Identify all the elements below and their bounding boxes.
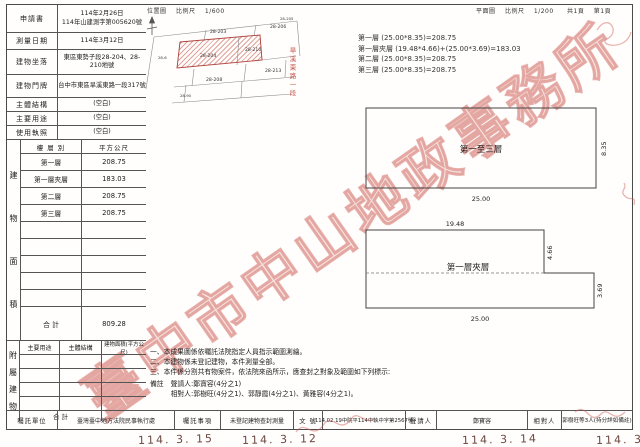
annex-table-vertical-label: 附 屬 建 物 <box>7 341 20 421</box>
doc-number-value: 114.02.19中院平114中執中字第2567號 <box>323 411 406 429</box>
plan-lower-bottomwidth-dim: 25.00 <box>471 315 490 323</box>
parcel-label: 28-213 <box>265 68 281 74</box>
table-row: 主體結構 (空白) <box>7 98 146 112</box>
application-info-table: 申請書 114年2月26日 114年山建測字第005620號 測量日期 114年… <box>7 5 146 140</box>
page-total: 共1頁 <box>567 8 584 15</box>
plan-upper-width-dim: 25.00 <box>472 195 491 203</box>
parcel-label: 28-204 <box>200 53 216 59</box>
table-row: 使用執照 (空白) <box>7 126 146 140</box>
field-value: (空白) <box>58 112 146 125</box>
note-line: 一、本成果圖係依囑託法院指定人員指示範圍測繪。 <box>150 347 490 357</box>
field-value: 東區東勢子段28-204、28-210地號 <box>58 50 146 74</box>
field-label: 申請書 <box>7 5 58 32</box>
field-label: 測量日期 <box>7 33 58 49</box>
note-line: 三、本件係分割共有物案件，依法院來函所示，應查封之對象及範圍如下列標示: <box>150 367 490 377</box>
plan-upper-label: 第一至三層 <box>460 144 503 155</box>
applicant-value: 鄭寶容 <box>437 411 528 429</box>
table-row: 測量日期 114年3月12日 <box>7 33 146 50</box>
parcel-label: 28-205 <box>280 16 294 21</box>
applicant-label: 聲請人 <box>406 411 437 429</box>
commission-matter-value: 未登記建物查封測量 <box>221 411 294 429</box>
floor-row: 第二層 208.75 <box>21 188 146 205</box>
plan-scale-label: 比例尺 <box>505 8 525 15</box>
remark-label: 備註 <box>150 379 164 399</box>
floor-area-table: 建 物 面 積 樓 層 別 平方公尺 第一層 208.75 第一層夾層 183.… <box>7 140 146 341</box>
area-calculation-block: 第一層 (25.00*8.35)=208.75 第一層夾層 (19.48*4.6… <box>358 33 521 75</box>
field-label: 主體結構 <box>7 98 58 111</box>
parcel-label: 28-210 <box>245 47 261 53</box>
date-stamp: 114. 3. 12 <box>596 432 640 447</box>
calc-line: 第三層 (25.00*8.35)=208.75 <box>358 65 521 76</box>
field-label: 建物坐落 <box>7 50 58 74</box>
calc-line: 第一層夾層 (19.48*4.66)+(25.00*3.69)=183.03 <box>358 44 521 55</box>
floor-row-empty <box>21 256 146 273</box>
date-stamp: 114. 3. 12 <box>242 432 318 447</box>
floor-row: 第三層 208.75 <box>21 205 146 222</box>
floor-row-empty <box>21 239 146 256</box>
annex-header-structure: 主體結構 <box>60 341 102 354</box>
respondent-label: 相對人 <box>528 411 562 429</box>
left-data-column: 申請書 114年2月26日 114年山建測字第005620號 測量日期 114年… <box>7 5 146 421</box>
plan-title: 平面圖 <box>476 8 496 15</box>
field-value: 114年2月26日 114年山建測字第005620號 <box>58 5 146 32</box>
location-map-title: 位置圖 <box>147 8 167 15</box>
field-value: (空白) <box>58 98 146 111</box>
note-line: 二、本建物係未登記建物，本件測量全部。 <box>150 357 490 367</box>
floor-plan-drawings: 第一至三層 25.00 8.35 19.48 4.66 第一層夾層 3.69 2… <box>356 90 636 335</box>
floor-table-vertical-label: 建 物 面 積 <box>7 140 21 340</box>
table-row: 申請書 114年2月26日 114年山建測字第005620號 <box>7 5 146 33</box>
annex-row-empty <box>20 355 146 369</box>
remark-row: 備註 聲請人:鄭寶容(4分之1) 相對人:郭樹旺(4分之1)、郭靜霞(4分之1)… <box>150 379 490 399</box>
commission-unit-label: 囑託單位 <box>7 411 58 429</box>
floor-name: 第二層 <box>21 188 82 204</box>
field-label: 建物門牌 <box>7 75 58 97</box>
table-row: 主要用途 (空白) <box>7 112 146 126</box>
parcel-label: 28-6 <box>158 55 167 60</box>
floor-area: 208.75 <box>82 188 146 204</box>
floor-row: 第一層夾層 183.03 <box>21 171 146 188</box>
location-map-scale: 1/600 <box>205 8 225 15</box>
field-label: 使用執照 <box>7 126 58 139</box>
calc-line: 第二層 (25.00*8.35)=208.75 <box>358 54 521 65</box>
annex-header-use: 主要用途 <box>20 341 60 354</box>
field-value: 114年3月12日 <box>58 33 146 49</box>
annex-header-area: 建物面積(平方公尺) <box>102 341 146 354</box>
parcel-label: 28-208 <box>206 77 222 83</box>
floor-row-empty <box>21 290 146 307</box>
floor-row-empty <box>21 222 146 239</box>
parcel-label: 28-206 <box>270 24 286 30</box>
floor-table-header: 樓 層 別 平方公尺 <box>21 140 146 154</box>
commission-unit-value: 臺灣臺中地方法院民事執行處 <box>58 411 175 429</box>
floor-total-label: 合 計 <box>21 307 82 340</box>
plan-caption: 平面圖 比例尺 1/200 <box>476 6 561 15</box>
floor-area: 208.75 <box>82 154 146 170</box>
north-arrow-icon <box>147 17 157 35</box>
floor-area: 183.03 <box>82 171 146 187</box>
floor-total-value: 809.28 <box>82 307 146 340</box>
plan-lower-lowerheight-dim: 3.69 <box>596 284 604 298</box>
survey-result-document: 臺中市中山地政事務所 位置圖 比例尺 1/600 平面圖 比例尺 1/200 共… <box>0 0 640 447</box>
plan-upper-height-dim: 8.35 <box>600 142 608 156</box>
plan-lower-topwidth-dim: 19.48 <box>446 220 465 228</box>
commission-matter-label: 囑託事項 <box>175 411 221 429</box>
plan-lower-label: 第一層夾層 <box>447 262 490 273</box>
parcel-label: 28-203 <box>210 29 226 35</box>
notes-block: 一、本成果圖係依囑託法院指定人員指示範圍測繪。 二、本建物係未登記建物，本件測量… <box>150 347 490 399</box>
page-indicator: 共1頁 第1頁 <box>567 6 618 15</box>
field-label: 主要用途 <box>7 112 58 125</box>
location-map-caption: 位置圖 比例尺 1/600 <box>147 6 232 15</box>
calc-line: 第一層 (25.00*8.35)=208.75 <box>358 33 521 44</box>
parcel-label: 28-90 <box>180 93 192 98</box>
location-map-scale-label: 比例尺 <box>176 8 196 15</box>
floor-total-row: 合 計 809.28 <box>21 307 146 340</box>
floor-area: 208.75 <box>82 205 146 221</box>
street-name-label: 旱溪東路一段 <box>287 47 297 98</box>
annex-row-empty <box>20 397 146 411</box>
remark-respondents: 相對人:郭樹旺(4分之1)、郭靜霞(4分之1)、黃雅容(4分之1)。 <box>171 389 358 399</box>
annex-table-header: 主要用途 主體結構 建物面積(平方公尺) <box>20 341 146 355</box>
remark-applicant: 聲請人:鄭寶容(4分之1) <box>171 379 358 389</box>
page-number: 第1頁 <box>594 8 611 15</box>
annex-building-table: 附 屬 建 物 主要用途 主體結構 建物面積(平方公尺) 合 計 <box>7 341 146 421</box>
annex-row-empty <box>20 369 146 383</box>
table-row: 建物坐落 東區東勢子段28-204、28-210地號 <box>7 50 146 75</box>
table-row: 建物門牌 台中市東區旱溪東路一段317號 <box>7 75 146 98</box>
floor-row-empty <box>21 273 146 290</box>
location-map: 28-203 28-206 28-205 28-204 28-210 28-6 … <box>144 15 308 118</box>
floor-name: 第三層 <box>21 205 82 221</box>
column-header-floor: 樓 層 別 <box>21 140 82 153</box>
field-value: (空白) <box>58 126 146 139</box>
field-value: 台中市東區旱溪東路一段317號 <box>58 75 146 97</box>
column-header-area: 平方公尺 <box>82 140 146 153</box>
floor-name: 第一層 <box>21 154 82 170</box>
date-stamp: 114. 3. 15 <box>138 432 214 447</box>
floor-row: 第一層 208.75 <box>21 154 146 171</box>
date-stamp: 114. 3. 14 <box>462 432 538 447</box>
plan-lower-upperheight-dim: 4.66 <box>546 246 554 260</box>
footer-strip: 囑託單位 臺灣臺中地方法院民事執行處 囑託事項 未登記建物查封測量 文 號 11… <box>7 410 632 429</box>
floor-name: 第一層夾層 <box>21 171 82 187</box>
respondent-value: 郭樹旺等3人(持分詳如備註) <box>562 411 632 429</box>
plan-scale: 1/200 <box>534 8 554 15</box>
annex-row-empty <box>20 383 146 397</box>
